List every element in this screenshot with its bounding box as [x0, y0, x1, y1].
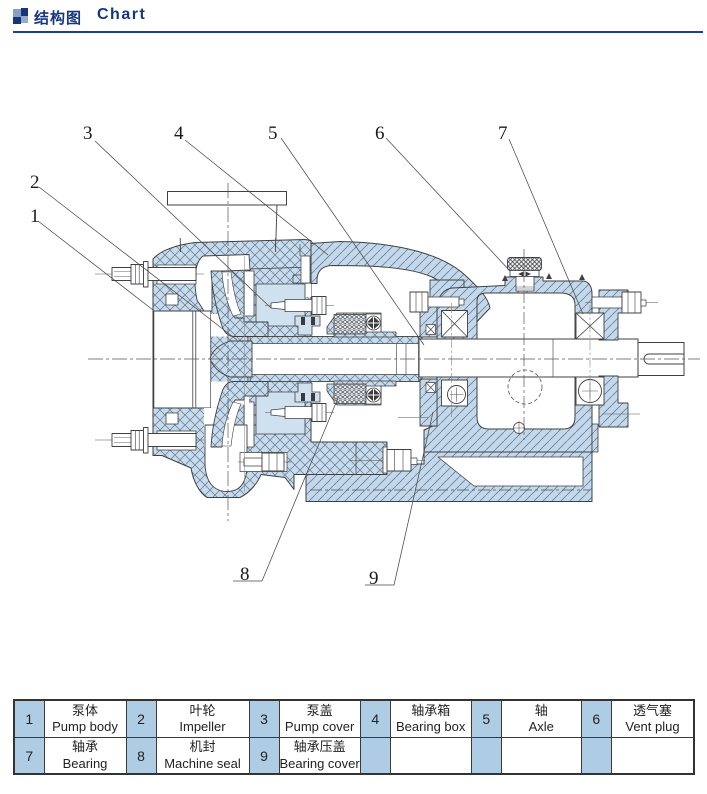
svg-text:6: 6 — [375, 123, 385, 144]
svg-text:9: 9 — [369, 568, 379, 589]
svg-text:7: 7 — [498, 123, 508, 144]
svg-text:3: 3 — [83, 123, 93, 144]
svg-text:8: 8 — [240, 564, 250, 585]
svg-text:5: 5 — [268, 123, 278, 144]
svg-text:4: 4 — [174, 123, 184, 144]
svg-text:2: 2 — [30, 172, 40, 193]
svg-text:1: 1 — [30, 206, 40, 227]
